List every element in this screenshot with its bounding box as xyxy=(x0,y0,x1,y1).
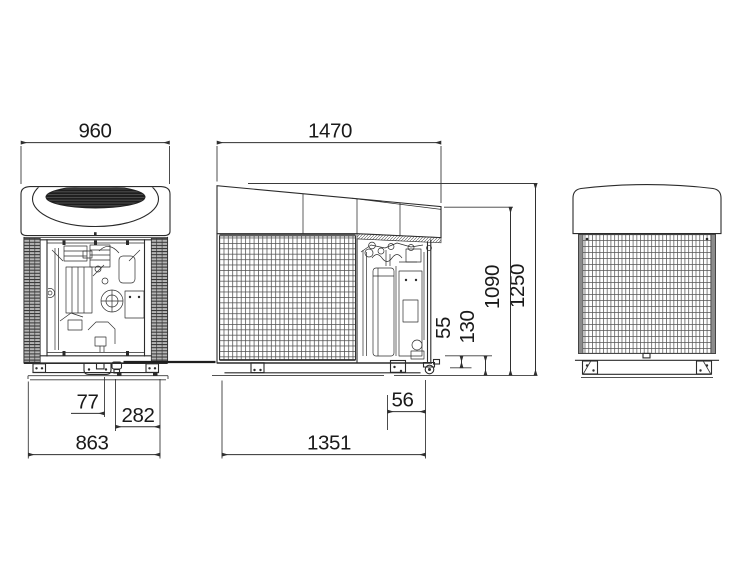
cover-seams xyxy=(303,194,400,236)
side-base xyxy=(217,360,440,374)
dim-overall-height-label: 1250 xyxy=(506,264,529,308)
fan-grille xyxy=(46,186,145,208)
front-view xyxy=(21,172,216,380)
dim-base-height-label: 130 xyxy=(456,310,479,343)
dim-front-mount-offset-label: 77 xyxy=(76,390,98,413)
rear-top-cowl xyxy=(573,185,721,234)
rear-base xyxy=(576,353,719,377)
front-base xyxy=(24,362,216,380)
dim-cover-height-label: 1090 xyxy=(481,265,504,309)
dim-front-mount-spacing-label: 282 xyxy=(121,404,154,427)
cowl-screw xyxy=(94,232,97,235)
dim-side-drain-offset-label: 56 xyxy=(391,389,413,412)
outdoor-unit-three-view-drawing: 960 1470 1250 1090 55 130 56 1351 77 xyxy=(0,0,732,585)
side-coil-mesh xyxy=(220,236,356,360)
front-grille-right xyxy=(151,238,167,362)
dim-front-base-width-label: 863 xyxy=(75,432,108,455)
front-service-frame xyxy=(40,240,151,356)
front-pad-outline xyxy=(28,376,168,380)
front-grille-left xyxy=(24,238,40,362)
dim-drain-clearance-label: 55 xyxy=(432,317,455,339)
front-machinery-linework xyxy=(45,245,144,362)
dimension-drawing-canvas: 960 1470 1250 1090 55 130 56 1351 77 xyxy=(0,0,732,585)
dim-side-base-length-label: 1351 xyxy=(307,432,351,455)
dim-front-width-label: 960 xyxy=(78,120,111,143)
rear-view xyxy=(573,185,721,378)
rear-coil-mesh xyxy=(579,235,716,354)
front-body-sides xyxy=(24,237,168,363)
dim-side-length-label: 1470 xyxy=(308,120,352,143)
cover-underside xyxy=(357,234,441,243)
side-machinery-linework xyxy=(361,243,424,359)
